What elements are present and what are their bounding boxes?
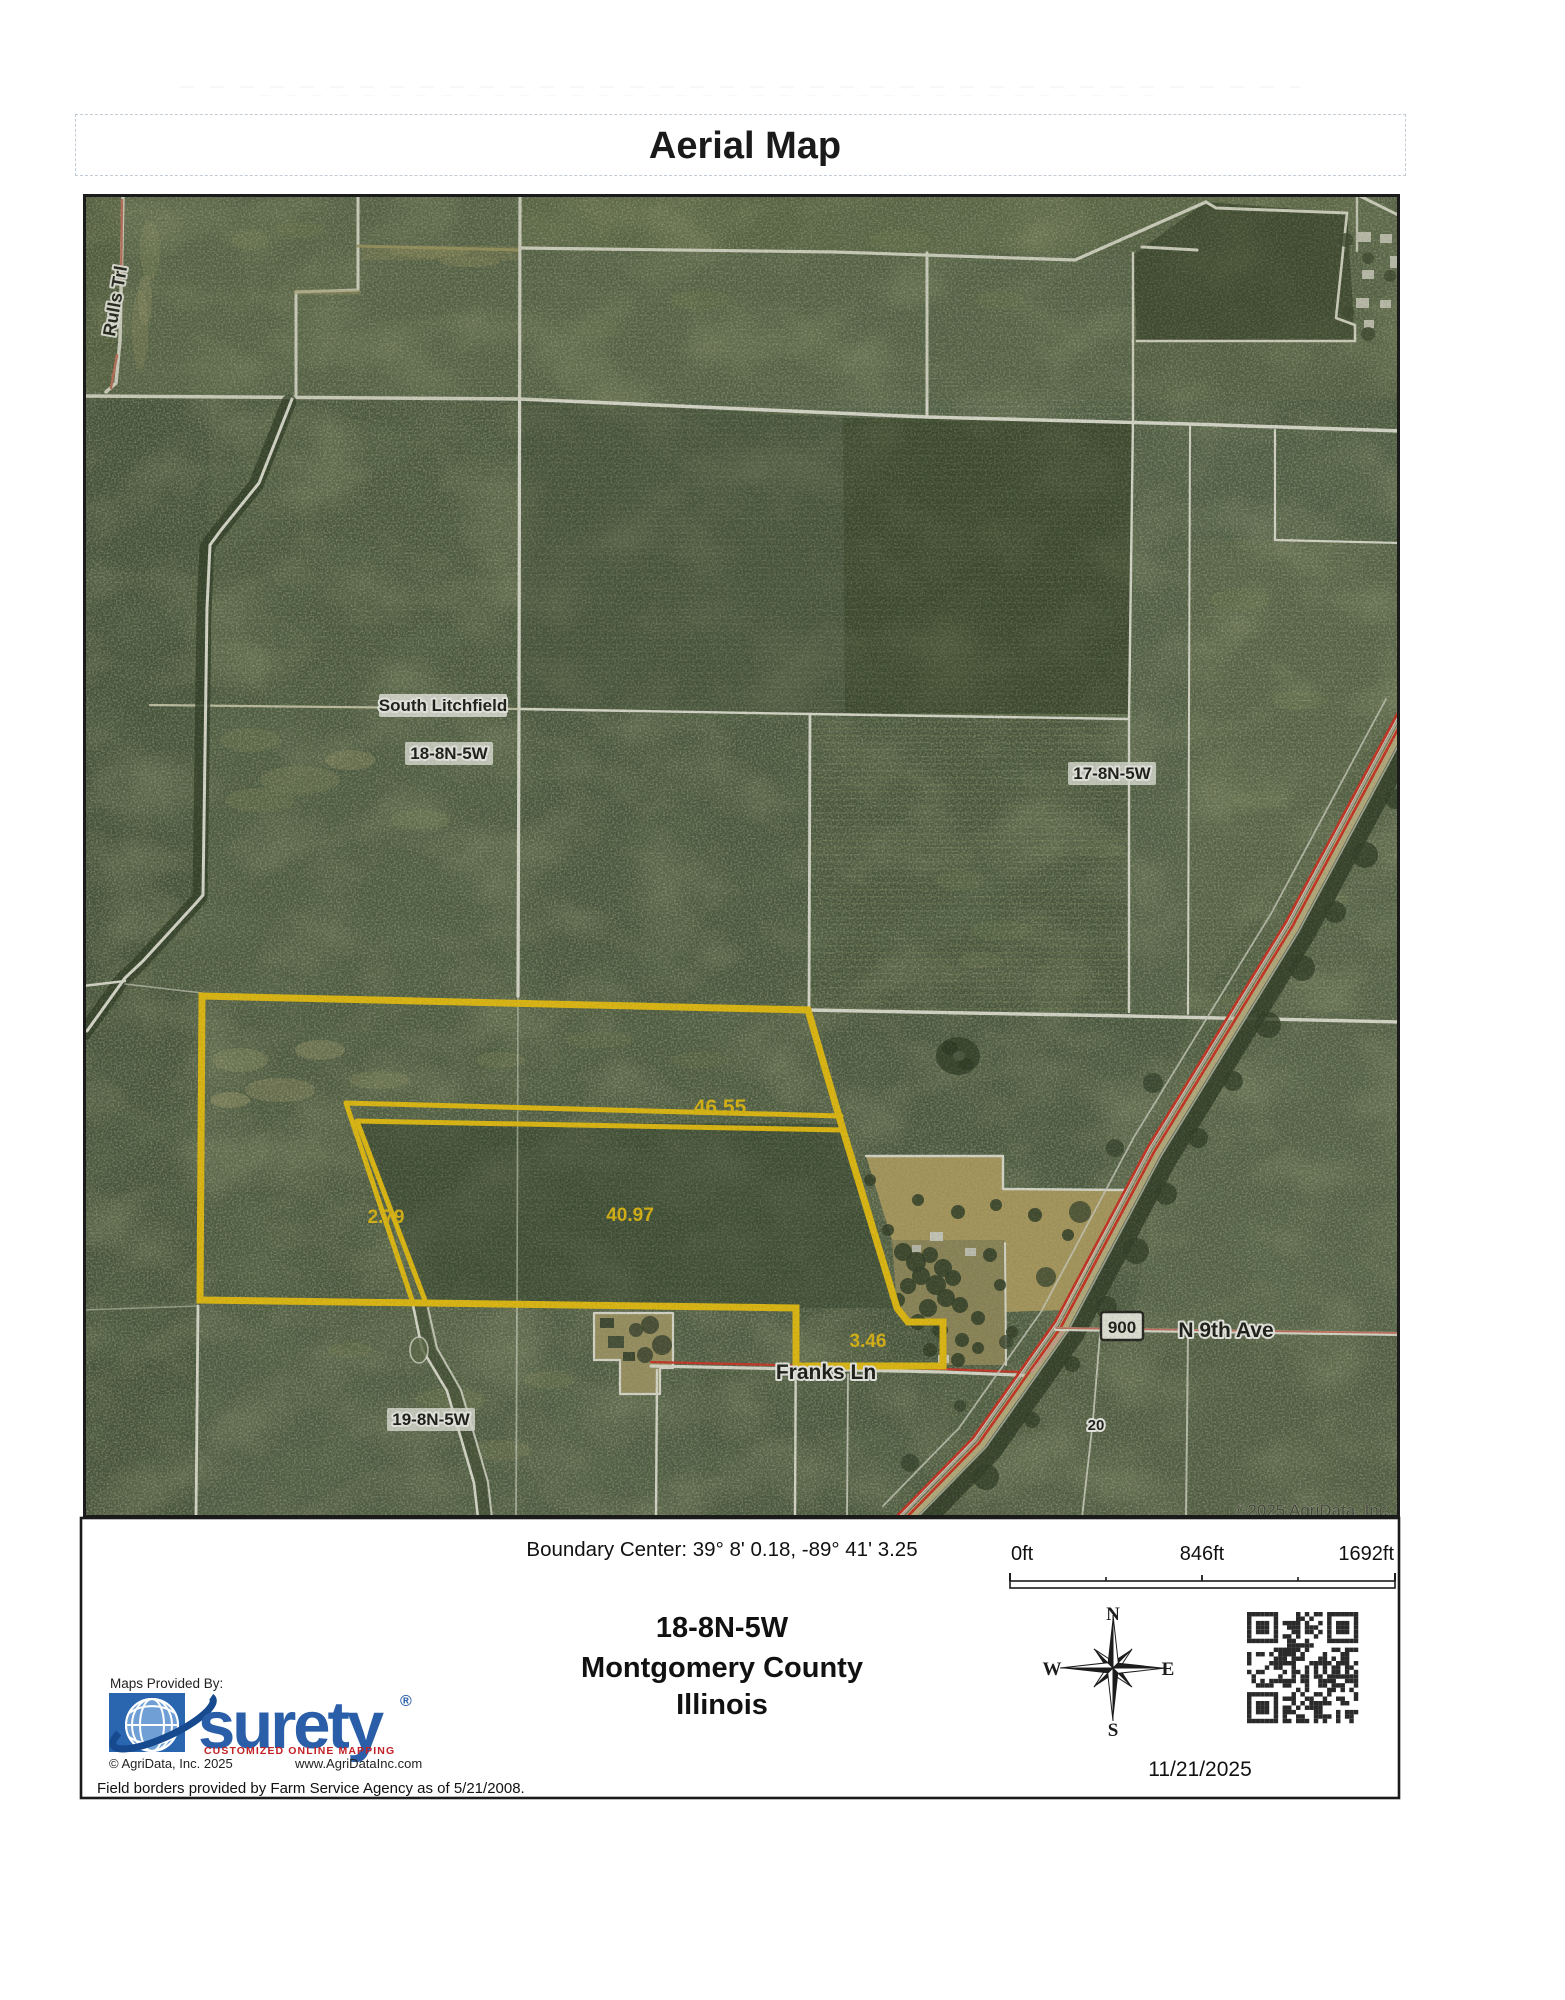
svg-text:E: E: [1162, 1659, 1175, 1680]
svg-text:0ft: 0ft: [1011, 1543, 1034, 1565]
svg-text:S: S: [1108, 1720, 1119, 1741]
svg-text:846ft: 846ft: [1180, 1543, 1225, 1565]
svg-text:N: N: [1106, 1604, 1120, 1625]
svg-text:Montgomery County: Montgomery County: [581, 1652, 863, 1684]
svg-text:11/21/2025: 11/21/2025: [1148, 1758, 1252, 1781]
svg-text:© AgriData, Inc. 2025: © AgriData, Inc. 2025: [109, 1756, 233, 1771]
svg-text:www.AgriDataInc.com: www.AgriDataInc.com: [294, 1756, 422, 1771]
svg-text:1692ft: 1692ft: [1338, 1543, 1394, 1565]
svg-text:®: ®: [400, 1693, 412, 1710]
svg-text:W: W: [1043, 1659, 1062, 1680]
svg-text:Field borders provided by Farm: Field borders provided by Farm Service A…: [97, 1780, 525, 1797]
svg-text:18-8N-5W: 18-8N-5W: [656, 1612, 789, 1644]
svg-text:Boundary Center: 39° 8' 0.18,: Boundary Center: 39° 8' 0.18, -89° 41' 3…: [526, 1538, 917, 1561]
svg-text:Illinois: Illinois: [676, 1689, 768, 1721]
